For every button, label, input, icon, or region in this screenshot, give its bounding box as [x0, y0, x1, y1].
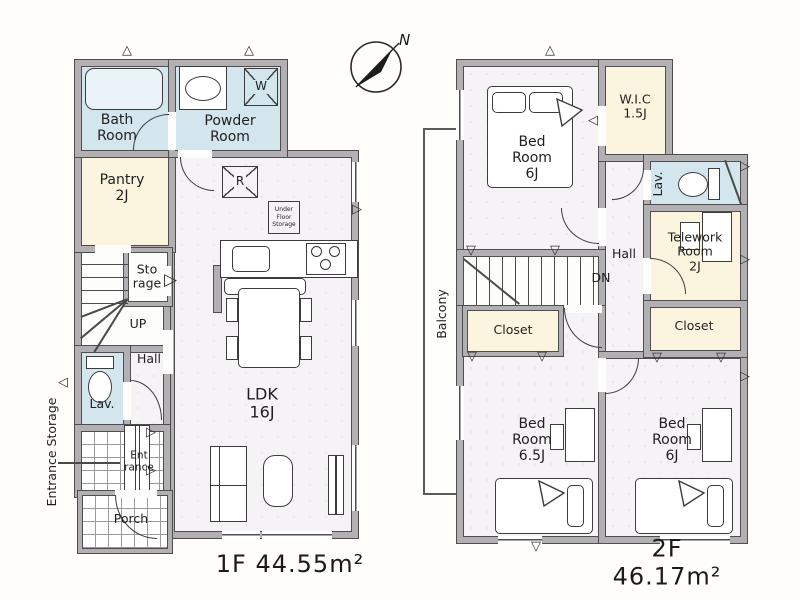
desk-chair: [550, 424, 564, 450]
pillow: [707, 485, 724, 527]
closet-door-mark: ▽: [652, 351, 662, 364]
pillow: [492, 92, 526, 113]
label-pantry: Pantry 2J: [100, 172, 145, 204]
powder-sink-icon: [185, 76, 221, 101]
stairs-2f-treads: [464, 257, 602, 305]
coffee-table: [263, 455, 293, 507]
window-ldk-right-2: [352, 300, 360, 346]
closet-door-mark: ▽: [537, 350, 547, 363]
pillow: [567, 485, 584, 527]
closet-door-mark: ▽: [466, 244, 476, 257]
roof-vent-icon: △: [545, 44, 555, 57]
window-bedroom-65: [456, 386, 464, 440]
label-bedroom-65: Bed Room 6.5J: [512, 416, 552, 464]
stove-burner: [329, 246, 340, 257]
dining-chair: [226, 298, 238, 322]
closet-door-mark: ▽: [467, 350, 477, 363]
floor-plan-stage: N W R Under Floor Storage: [0, 0, 800, 600]
area-label-1f: 1F 44.55m²: [216, 551, 364, 579]
desk: [565, 408, 595, 462]
label-lav-2f: Lav.: [651, 171, 665, 196]
bed-fold-mark: [556, 98, 584, 128]
toilet-tank-2f: [708, 168, 720, 200]
bed-fold-mark: [678, 480, 706, 508]
closet-door-mark: ▽: [716, 351, 726, 364]
tv-board: [328, 455, 344, 515]
label-closet-right: Closet: [675, 319, 714, 333]
window-ldk-bottom-2: [262, 531, 332, 539]
label-hall-2f: Hall: [612, 247, 636, 261]
roof-vent-icon: △: [244, 44, 254, 57]
storage-door-mark: ▷: [164, 272, 177, 289]
area-label-2f: 2F 46.17m²: [601, 535, 734, 590]
bed-fold-mark: [538, 480, 566, 508]
roof-vent-icon: △: [122, 44, 132, 57]
toilet-tank-1f: [86, 356, 114, 369]
wall-vent-icon: ▽: [531, 540, 541, 553]
stove-burner: [311, 246, 322, 257]
opening-hall-ldk: [163, 330, 173, 374]
stove-burner: [320, 259, 331, 270]
label-hall-1f: Hall: [137, 352, 161, 366]
fridge-label: R: [234, 175, 246, 188]
wall-vent-icon: ▷: [740, 370, 750, 383]
entrance-step-mark: ▷: [146, 426, 156, 439]
desk: [702, 408, 732, 462]
wall-vent-icon: ▷: [740, 160, 750, 173]
wall-vent-icon: ▷: [740, 253, 750, 266]
label-up: UP: [130, 317, 147, 331]
label-porch: Porch: [114, 512, 148, 526]
dining-chair: [226, 336, 238, 360]
wall-vent-icon: ▷: [352, 203, 362, 216]
label-closet-left: Closet: [494, 323, 533, 337]
toilet-icon-2f: [678, 172, 708, 197]
door-gap-bath: [168, 112, 176, 150]
door-gap-wic: [598, 106, 606, 146]
label-ldk: LDK 16J: [246, 386, 278, 423]
label-bath: Bath Room: [97, 112, 137, 144]
wic-door-mark: ◁: [588, 114, 598, 127]
window-ldk-bottom-1: [222, 531, 260, 539]
compass-icon: N: [343, 30, 413, 100]
dining-chair: [300, 336, 312, 360]
dining-chair: [300, 298, 312, 322]
label-entrance-storage: Entrance Storage: [45, 398, 59, 507]
under-floor-storage-label: Under Floor Storage: [272, 206, 295, 229]
label-lav-1f: Lav.: [89, 397, 114, 411]
label-telework: Telework Room 2J: [668, 230, 723, 273]
kitchen-sink-icon: [232, 246, 270, 272]
label-dn: DN: [592, 271, 611, 285]
window-ldk-right-1: [352, 162, 360, 202]
wall-vent-icon: ◁: [58, 376, 68, 389]
label-powder: Powder Room: [204, 113, 255, 145]
label-bedroom-6: Bed Room 6J: [652, 416, 692, 464]
washing-machine-icon: W: [244, 68, 278, 106]
bathtub: [85, 68, 163, 110]
window-ldk-right-3: [352, 445, 360, 511]
label-entrance: Ent rance: [124, 450, 154, 473]
washer-label: W: [253, 80, 269, 93]
label-wic: W.I.C 1.5J: [619, 93, 650, 122]
refrigerator-icon: R: [222, 166, 258, 198]
sofa: [210, 446, 247, 522]
label-bedroom-main: Bed Room 6J: [512, 134, 552, 182]
door-gap-bedroom-main: [598, 208, 606, 246]
label-balcony: Balcony: [435, 289, 449, 339]
compass-north-label: N: [399, 31, 410, 49]
label-storage: Sto rage: [133, 263, 161, 292]
closet-door-mark: ▽: [550, 244, 560, 257]
window-bedroom-main: [456, 90, 464, 140]
entrance-storage-pointer-line: [58, 462, 120, 464]
dining-table: [238, 288, 300, 368]
